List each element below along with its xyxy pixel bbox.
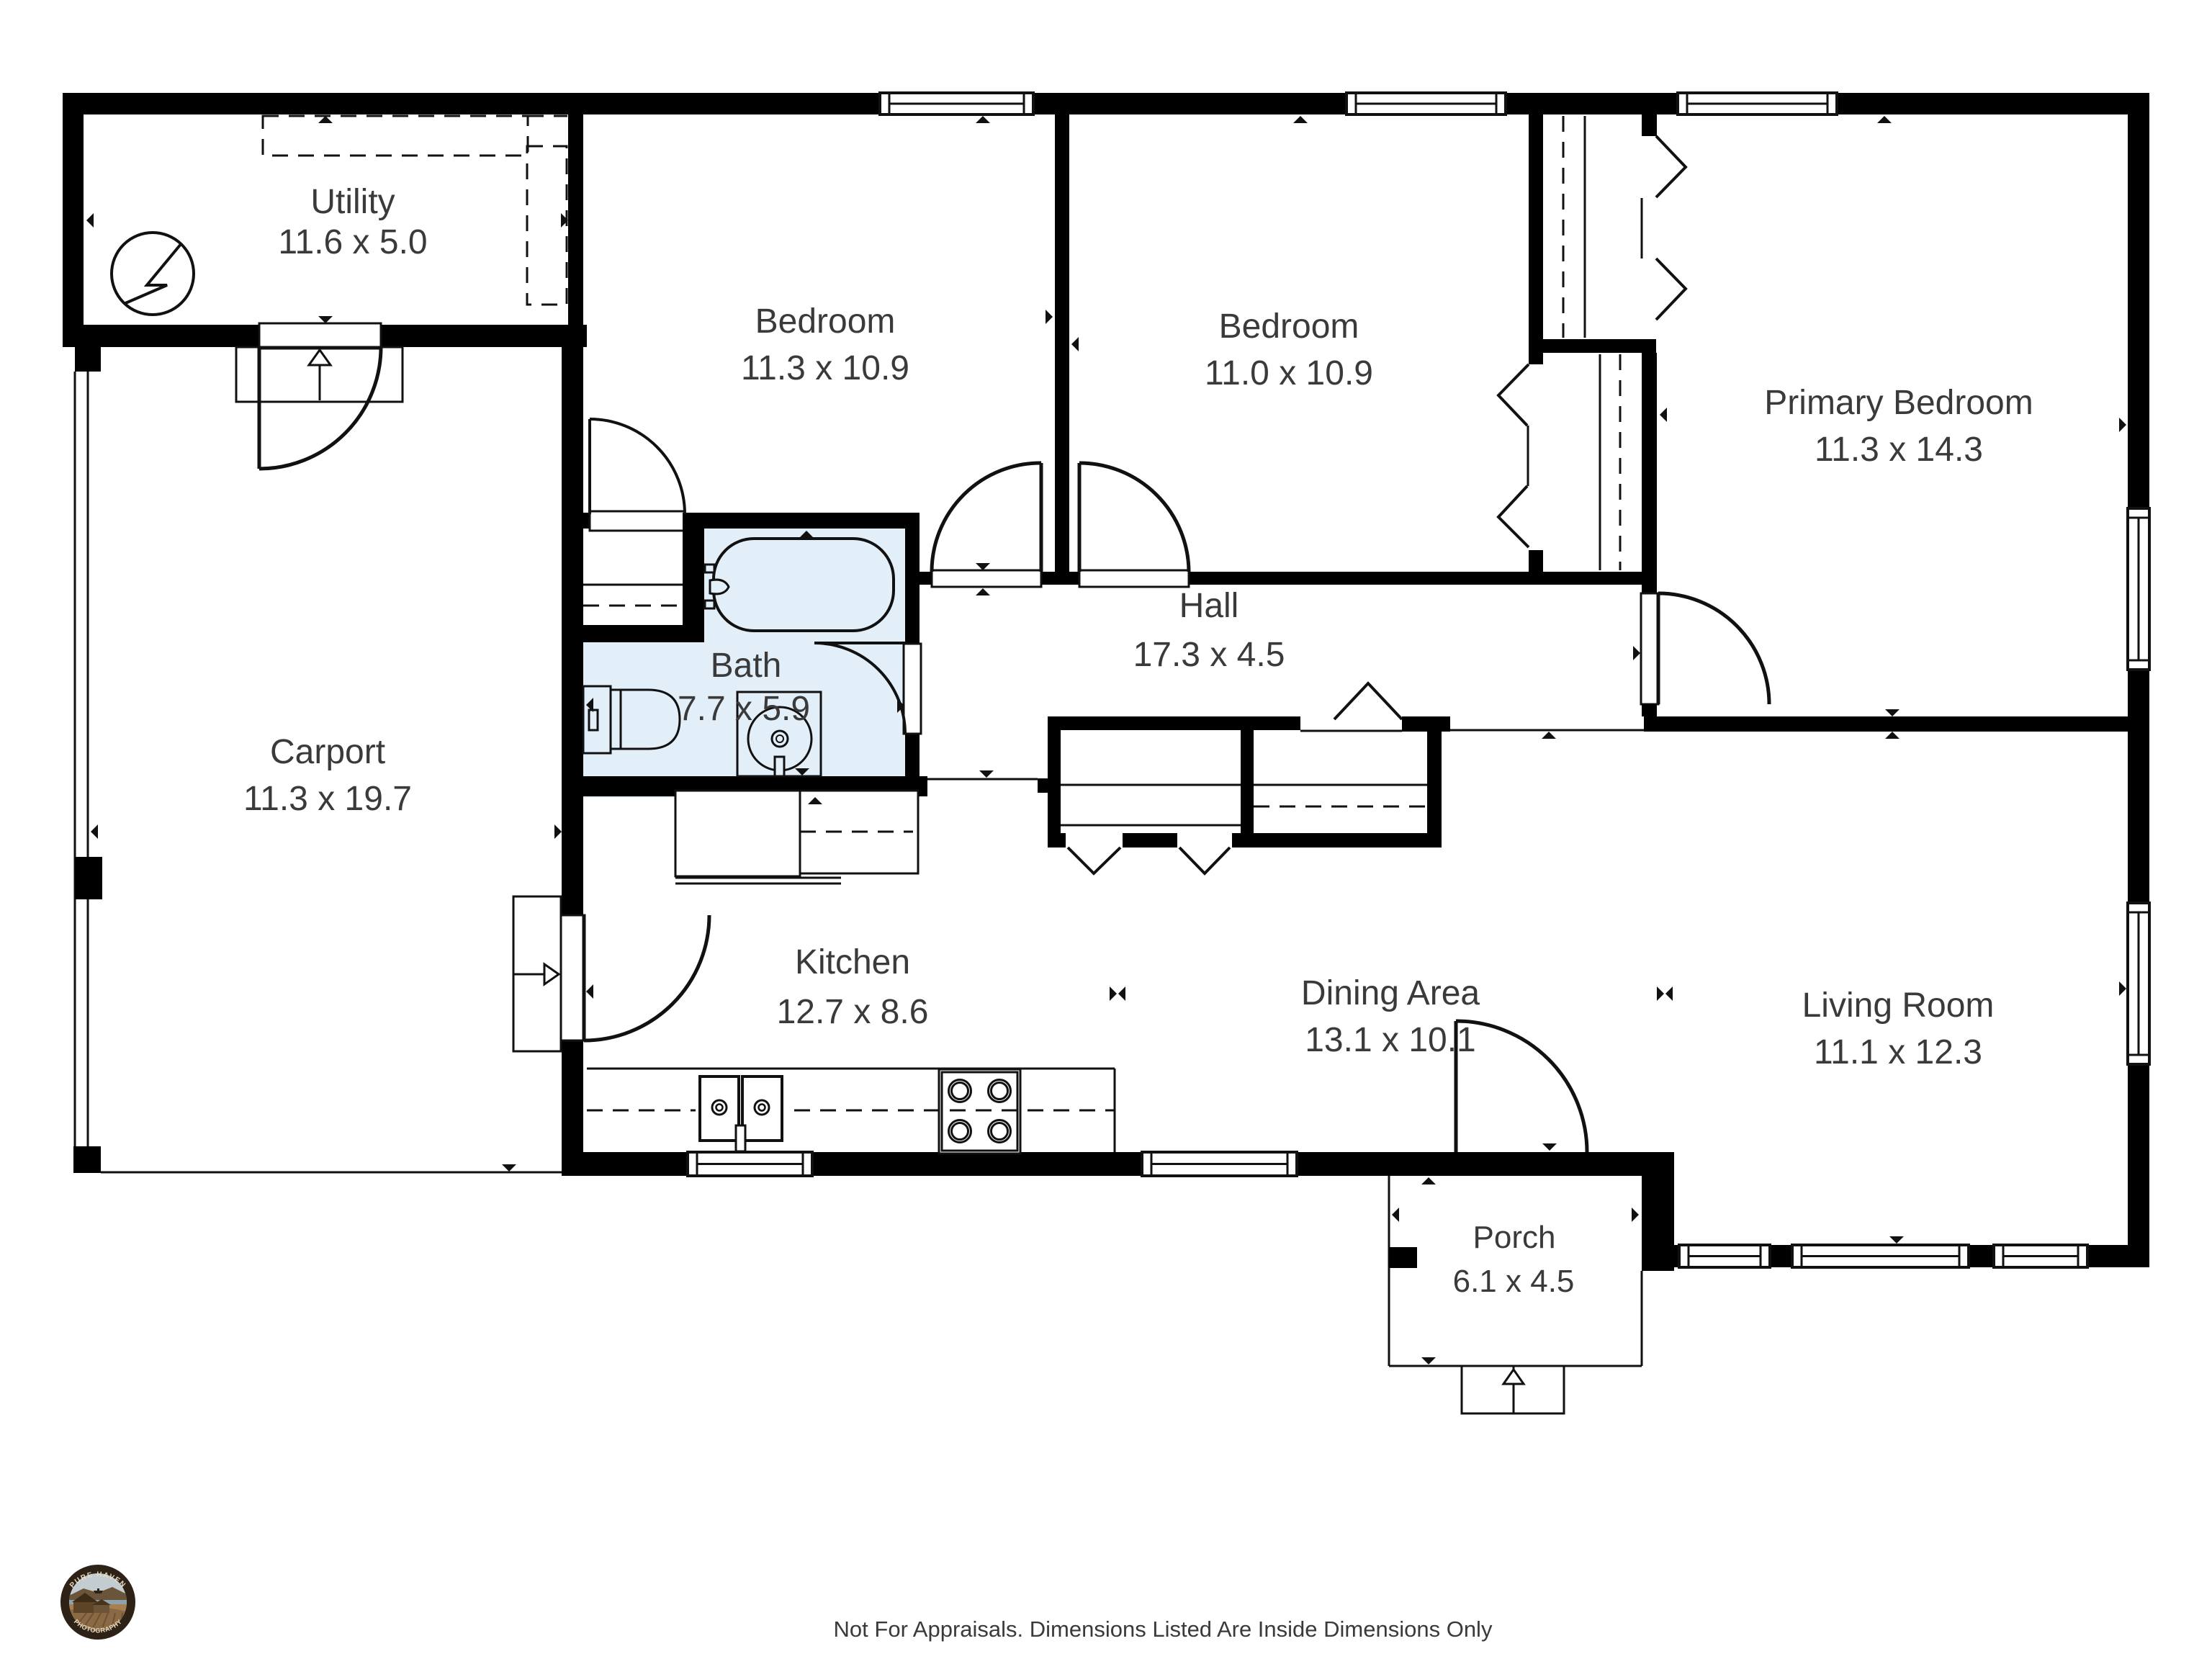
svg-text:Not For Appraisals. Dimensions: Not For Appraisals. Dimensions Listed Ar…: [834, 1617, 1493, 1642]
svg-text:17.3 x 4.5: 17.3 x 4.5: [1133, 636, 1285, 674]
svg-text:11.0 x 10.9: 11.0 x 10.9: [1205, 354, 1373, 392]
svg-text:Dining Area: Dining Area: [1301, 974, 1480, 1012]
svg-text:Utility: Utility: [310, 183, 395, 221]
svg-text:11.3 x 14.3: 11.3 x 14.3: [1815, 431, 1983, 469]
svg-text:13.1 x 10.1: 13.1 x 10.1: [1305, 1021, 1476, 1059]
svg-text:Primary Bedroom: Primary Bedroom: [1764, 384, 2033, 422]
svg-text:11.6 x 5.0: 11.6 x 5.0: [278, 223, 427, 261]
svg-text:Carport: Carport: [270, 733, 385, 771]
svg-text:11.1 x 12.3: 11.1 x 12.3: [1814, 1033, 1982, 1071]
svg-text:Living Room: Living Room: [1802, 986, 1995, 1025]
svg-text:11.3 x 19.7: 11.3 x 19.7: [243, 780, 412, 818]
svg-text:11.3 x 10.9: 11.3 x 10.9: [741, 349, 909, 387]
svg-text:Bedroom: Bedroom: [1219, 307, 1359, 346]
svg-text:Hall: Hall: [1179, 587, 1239, 625]
svg-text:Bedroom: Bedroom: [755, 302, 896, 341]
svg-text:Porch: Porch: [1473, 1220, 1556, 1255]
svg-text:6.1 x 4.5: 6.1 x 4.5: [1453, 1264, 1575, 1299]
svg-text:7.7 x 5.9: 7.7 x 5.9: [678, 690, 810, 728]
svg-text:Bath: Bath: [711, 647, 782, 685]
svg-text:12.7 x 8.6: 12.7 x 8.6: [777, 993, 929, 1031]
svg-text:Kitchen: Kitchen: [795, 943, 910, 981]
